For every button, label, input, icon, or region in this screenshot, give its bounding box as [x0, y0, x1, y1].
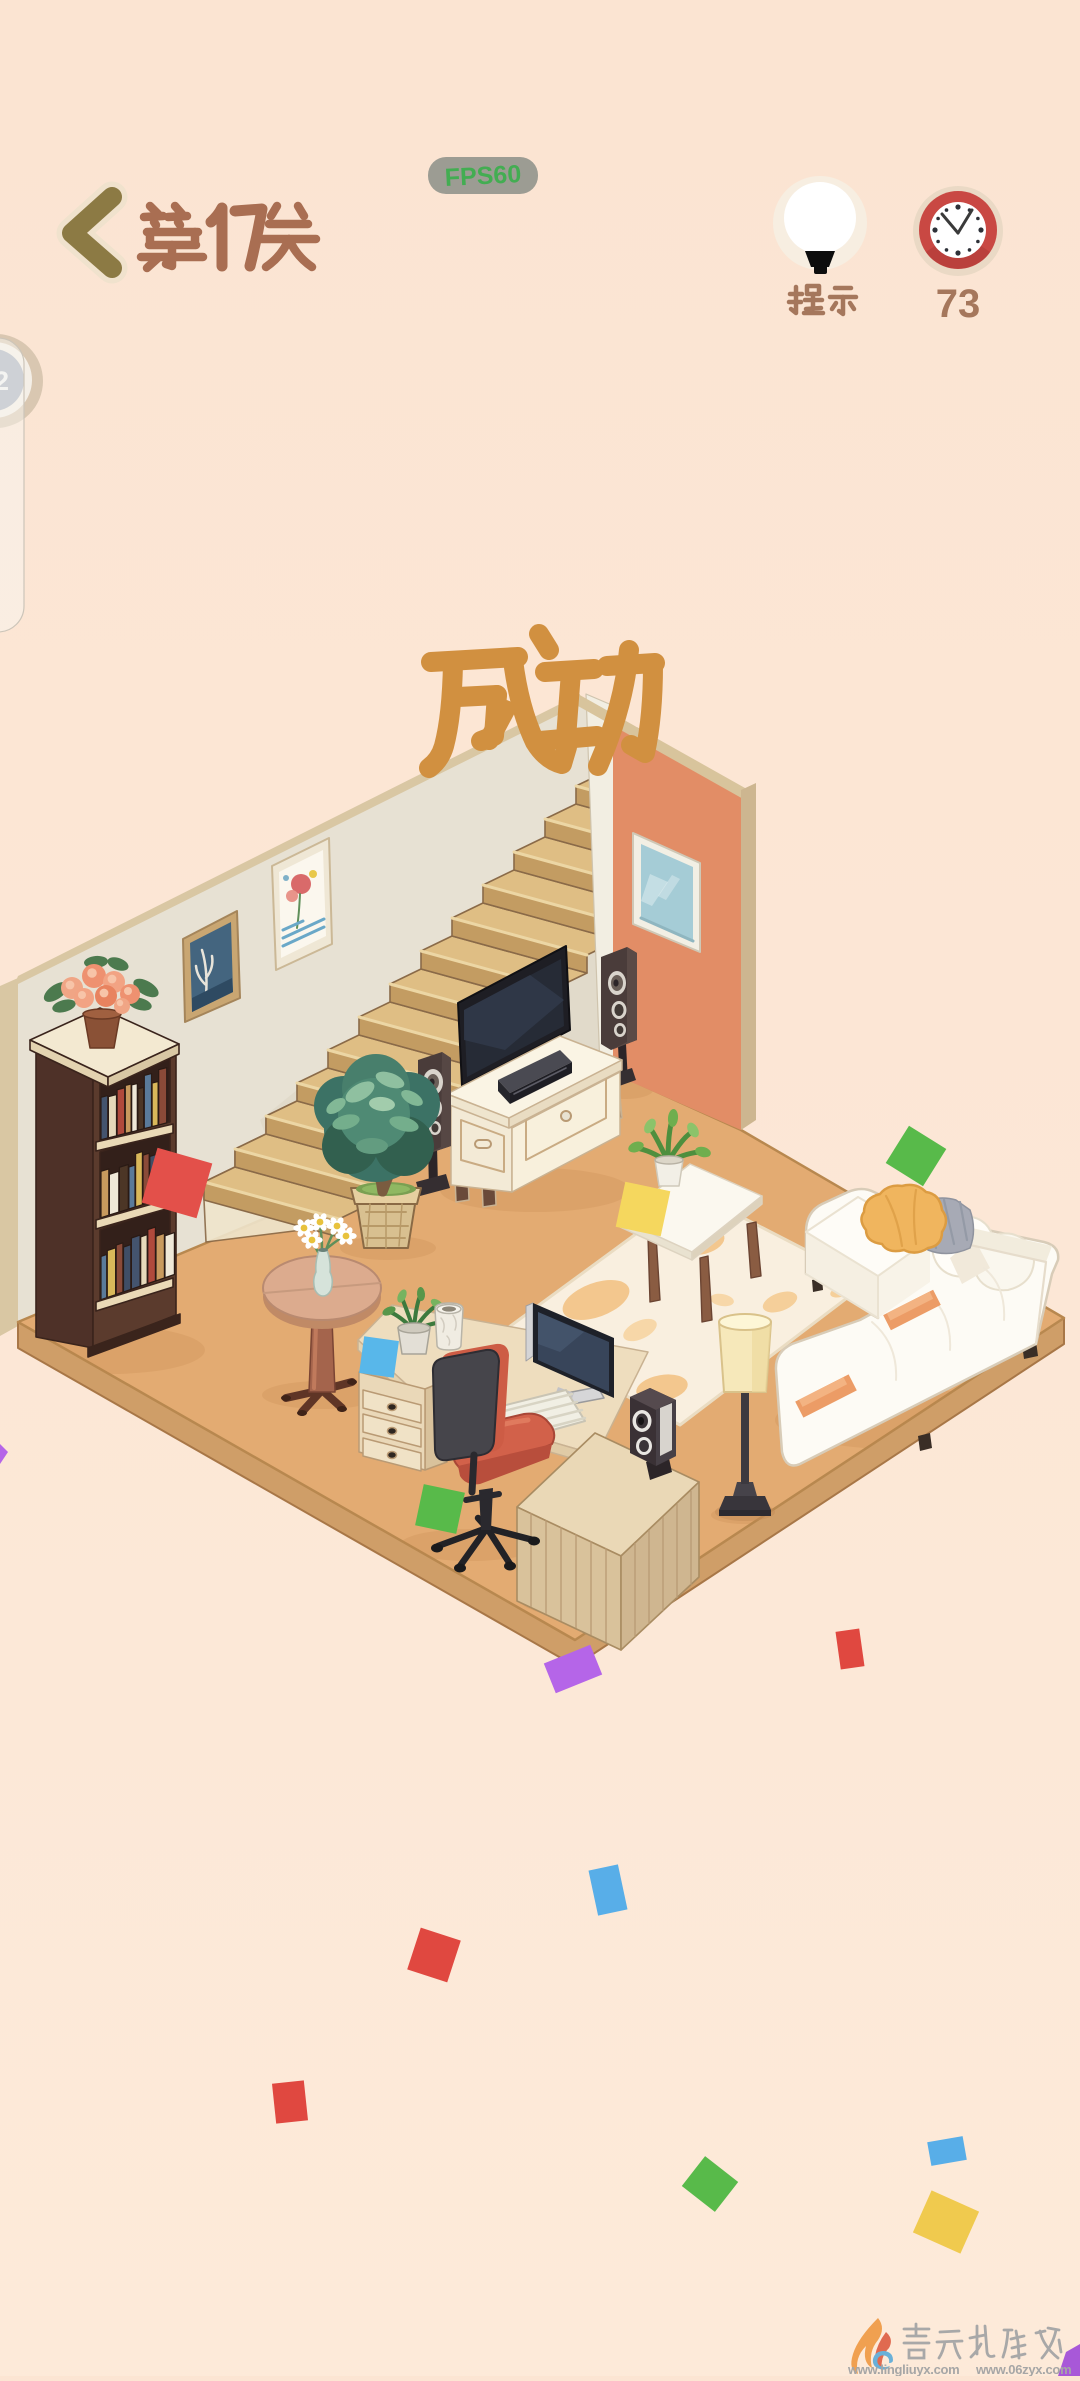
- svg-text:FPS60: FPS60: [444, 160, 522, 192]
- svg-text:www.lingliuyx.com: www.lingliuyx.com: [847, 2362, 959, 2376]
- svg-text:www.06zyx.com: www.06zyx.com: [975, 2362, 1071, 2376]
- svg-text:73: 73: [936, 282, 981, 326]
